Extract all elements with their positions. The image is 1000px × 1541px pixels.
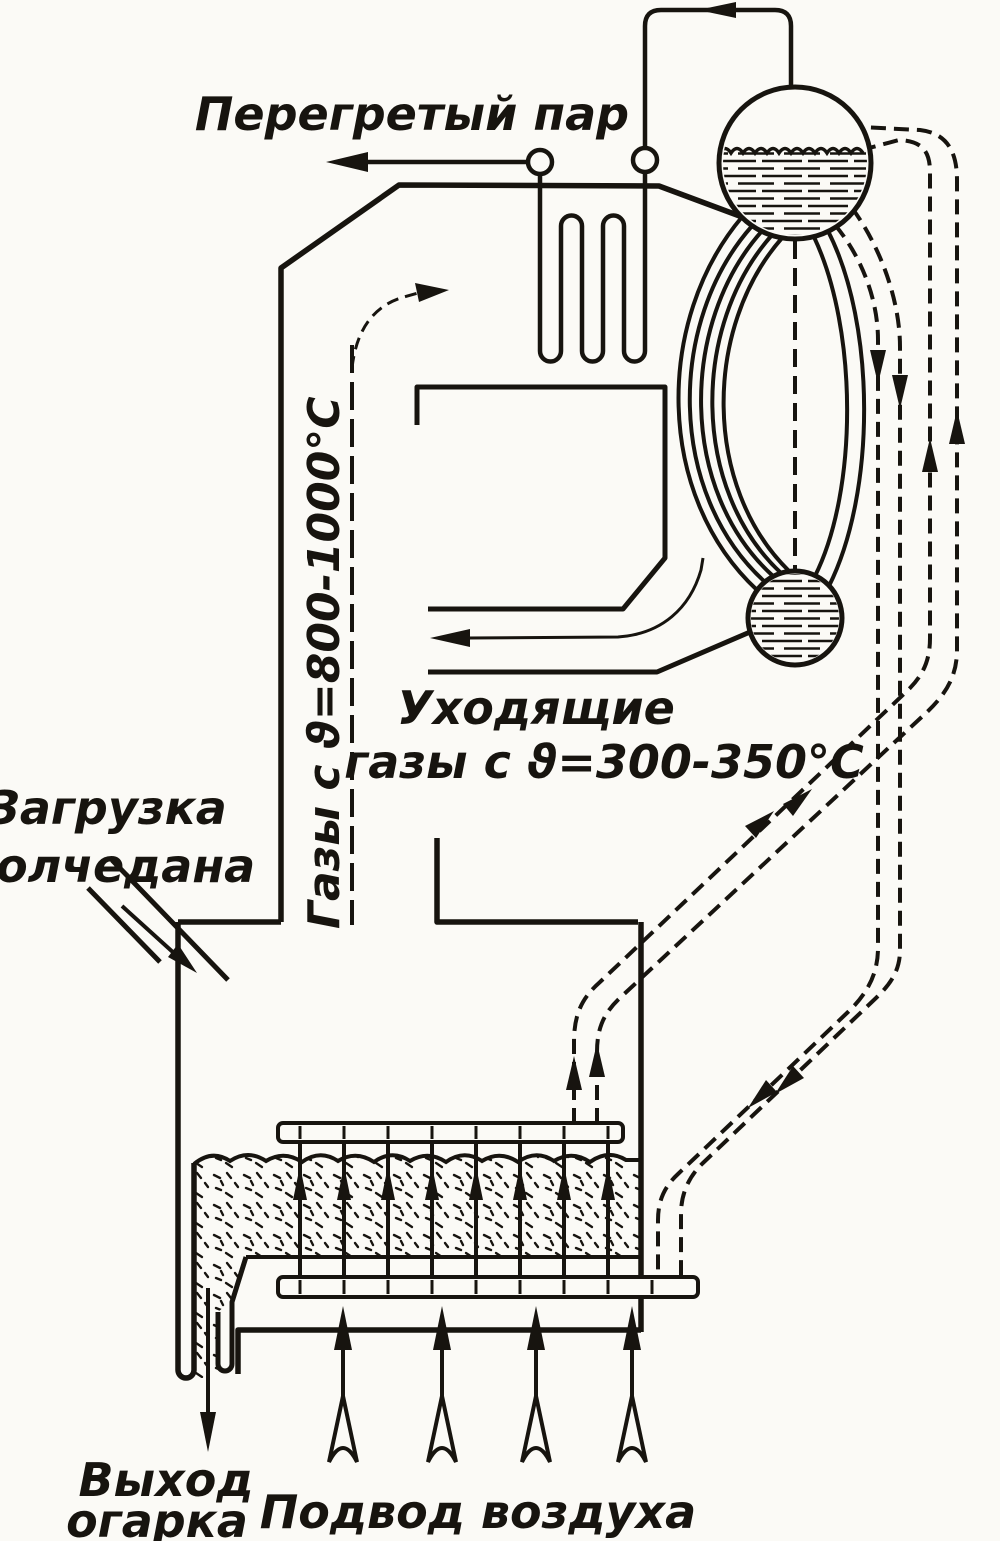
bottom-header-bar xyxy=(278,1277,698,1297)
label-exhaust-gases-2: газы с ϑ=300-350°С xyxy=(344,735,864,789)
boiler-furnace-schematic: Перегретый пар Газы с ϑ=800-1000°С Уходя… xyxy=(0,0,1000,1541)
flow-diagram: Перегретый пар Газы с ϑ=800-1000°С Уходя… xyxy=(0,0,1000,1541)
valve-icon xyxy=(633,148,657,172)
lower-drum xyxy=(748,571,842,666)
valve-icon xyxy=(528,150,552,174)
label-pyrite-feed-2: колчедана xyxy=(0,839,255,893)
label-air-supply: Подвод воздуха xyxy=(260,1485,696,1539)
label-exhaust-gases-1: Уходящие xyxy=(397,681,675,735)
label-hot-gases: Газы с ϑ=800-1000°С xyxy=(299,396,350,929)
label-cinder-out-2: огарка xyxy=(66,1494,248,1541)
top-header-bar xyxy=(278,1123,623,1142)
label-pyrite-feed-1: Загрузка xyxy=(0,781,227,835)
label-superheated-steam: Перегретый пар xyxy=(195,87,629,141)
